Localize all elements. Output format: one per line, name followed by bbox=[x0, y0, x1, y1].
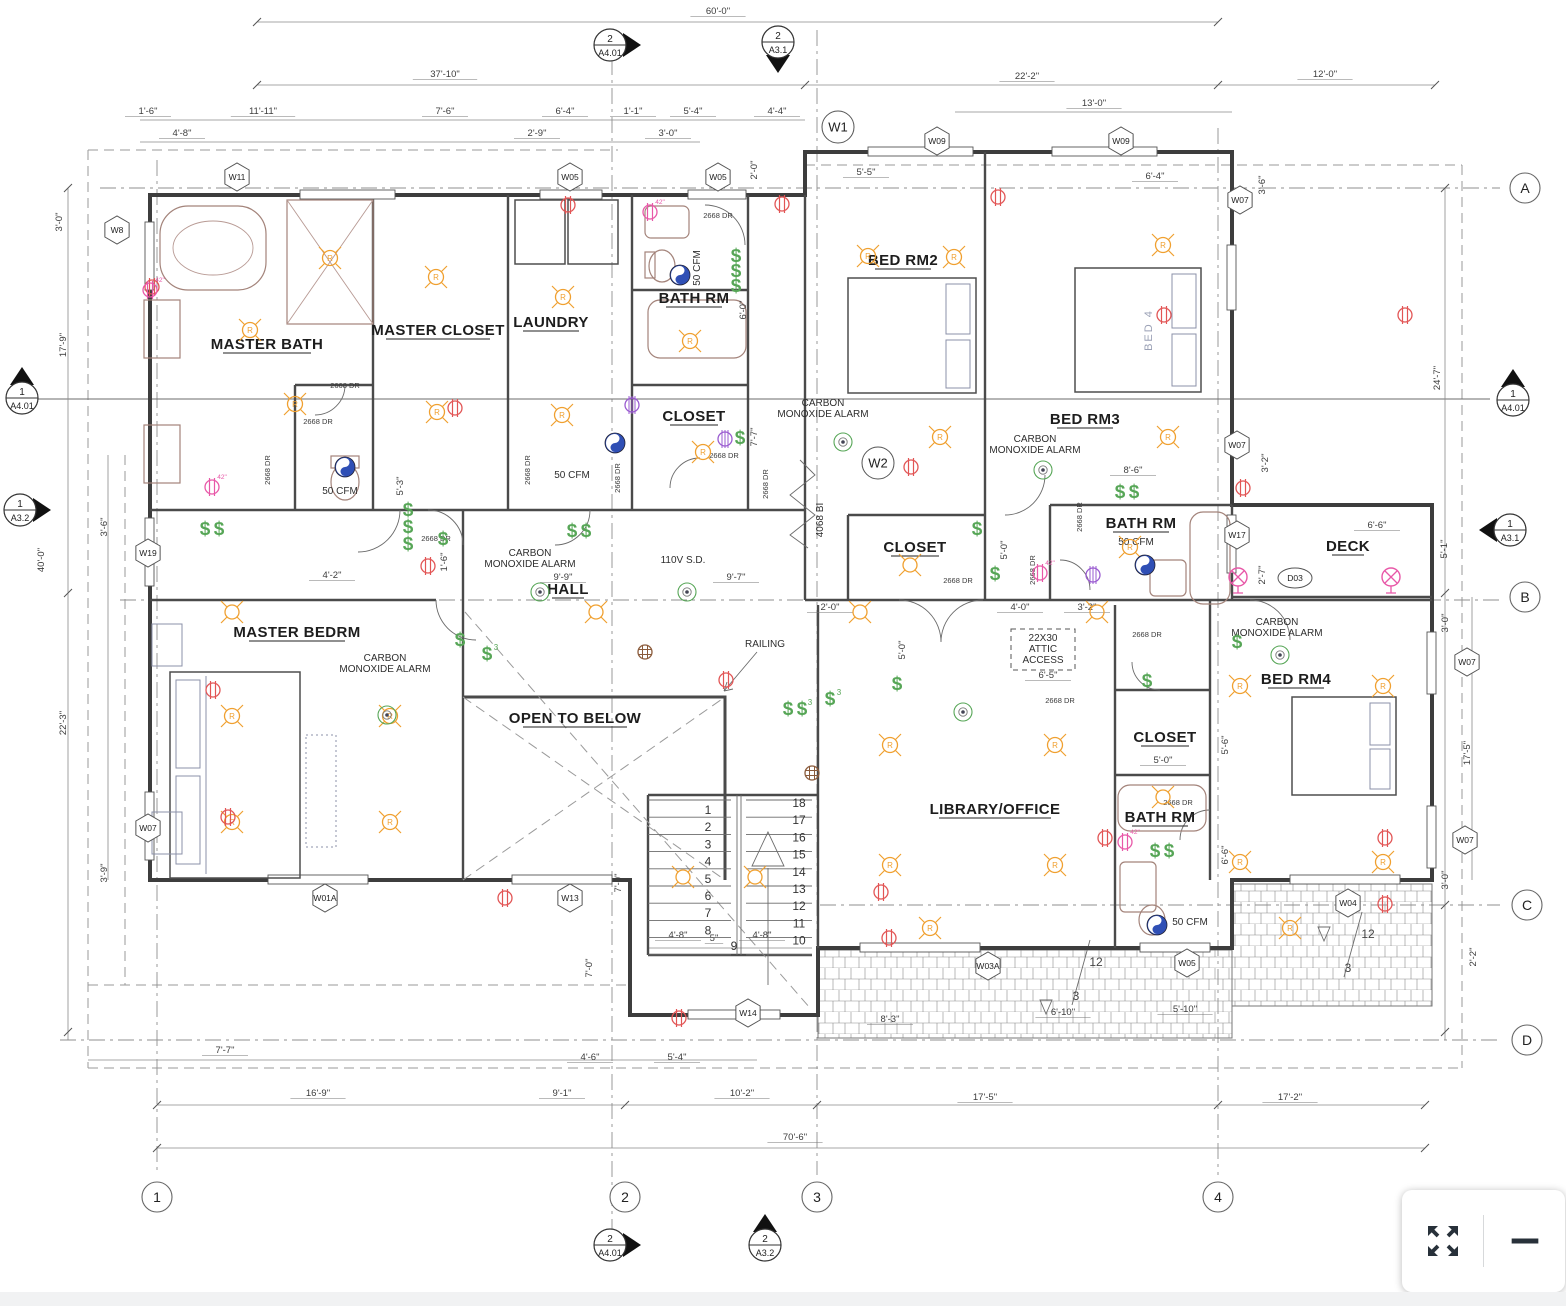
door-size-label: 2668 DR bbox=[1132, 630, 1162, 639]
duplex-outlet-icon bbox=[448, 401, 462, 415]
detector-center-dot bbox=[385, 713, 389, 717]
room-label: LAUNDRY bbox=[513, 314, 589, 331]
switch-icon: $ bbox=[403, 534, 414, 555]
recessed-light-letter: R bbox=[247, 326, 253, 335]
stair-number: 9 bbox=[731, 939, 738, 953]
switch-icon: $ bbox=[1164, 841, 1175, 862]
annotation-label: ACCESS bbox=[1022, 655, 1063, 666]
door-size-label: 2668 DR bbox=[761, 469, 770, 499]
floorplan-canvas[interactable]: MASTER BATHMASTER CLOSETLAUNDRYBATH RMBE… bbox=[0, 0, 1566, 1306]
dimension-label: 1'-1" bbox=[624, 106, 643, 117]
dimension-label: 6'-0" bbox=[738, 301, 749, 320]
window-tag-label: W07 bbox=[1456, 835, 1474, 845]
annotation-label: 50 CFM bbox=[322, 486, 358, 497]
ceiling-light-icon bbox=[225, 605, 239, 619]
grid-bubble-label: D bbox=[1522, 1032, 1532, 1048]
duplex-outlet-icon bbox=[874, 885, 888, 899]
stair-number: 14 bbox=[792, 865, 806, 879]
grid-bubble-label: C bbox=[1522, 897, 1532, 913]
section-marker-sheet: A3.1 bbox=[769, 45, 788, 55]
stair-number: 13 bbox=[792, 882, 806, 896]
dimension-label: 17'-5" bbox=[1462, 741, 1473, 765]
outlet-42in-label: 42" bbox=[1130, 829, 1140, 836]
section-marker-sheet: A4.01 bbox=[10, 401, 34, 411]
annotation-label: CARBON bbox=[509, 548, 552, 559]
dimension-label: 5'-0" bbox=[1154, 755, 1173, 766]
recessed-light-letter: R bbox=[327, 254, 333, 263]
door-size-label: 2668 DR bbox=[703, 211, 733, 220]
window-tag-label: W07 bbox=[1458, 657, 1476, 667]
switch-3way-label: 3 bbox=[808, 698, 813, 707]
recessed-light-letter: R bbox=[1052, 861, 1058, 870]
room-label: BED RM4 bbox=[1261, 671, 1332, 688]
stair-number: 4 bbox=[705, 855, 712, 869]
grid-bubble-label: 4 bbox=[1214, 1189, 1222, 1205]
recessed-light-letter: R bbox=[687, 337, 693, 346]
dimension-label: 5'-4" bbox=[668, 1052, 687, 1063]
annotation-label: 3 bbox=[1073, 989, 1080, 1003]
annotation-label: ATTIC bbox=[1029, 644, 1057, 655]
stair-number: 12 bbox=[792, 899, 806, 913]
dimension-label: 22'-2" bbox=[1015, 71, 1039, 82]
annotation-label: 12 bbox=[1089, 955, 1103, 969]
recessed-light-letter: R bbox=[1052, 741, 1058, 750]
ceiling-light-arms bbox=[221, 601, 243, 623]
dimension-label: 2'-0" bbox=[821, 602, 840, 613]
annotation-label: MONOXIDE ALARM bbox=[989, 445, 1080, 456]
recessed-light-letter: R bbox=[937, 433, 943, 442]
room-label: MASTER CLOSET bbox=[371, 322, 505, 339]
window-tag-label: W03A bbox=[976, 961, 999, 971]
grid-bubble-label: A bbox=[1520, 180, 1530, 196]
room-label: HALL bbox=[547, 581, 589, 598]
grid-bubble-label: 2 bbox=[621, 1189, 629, 1205]
window-tag-label: W07 bbox=[1231, 195, 1249, 205]
section-marker-number: 1 bbox=[19, 387, 25, 398]
stair-number: 7 bbox=[705, 906, 712, 920]
recessed-light-letter: R bbox=[229, 712, 235, 721]
section-marker-number: 2 bbox=[775, 31, 781, 42]
recessed-light-letter: R bbox=[433, 273, 439, 282]
dimension-label: 17'-9" bbox=[58, 333, 69, 357]
dimension-label: 7'-7" bbox=[216, 1045, 235, 1056]
recessed-light-letter: R bbox=[1287, 924, 1293, 933]
annotation-label: BED 4 bbox=[1143, 309, 1155, 351]
dimension-label: 5'-3" bbox=[395, 477, 406, 496]
duplex-outlet-icon bbox=[421, 559, 435, 573]
detector-center-dot bbox=[685, 590, 689, 594]
ceiling-light-arms bbox=[585, 601, 607, 623]
ceiling-light-icon bbox=[589, 605, 603, 619]
section-marker-number: 1 bbox=[17, 499, 23, 510]
recessed-light-letter: R bbox=[1127, 543, 1133, 552]
dimension-label: 7'-6" bbox=[436, 106, 455, 117]
window-tag-label: W05 bbox=[1178, 958, 1196, 968]
dimension-label: 13'-0" bbox=[1082, 98, 1106, 109]
switch-icon: $ bbox=[567, 521, 578, 542]
recessed-light-letter: R bbox=[1165, 433, 1171, 442]
duplex-outlet-icon bbox=[206, 683, 220, 697]
dimension-label: 2'-2" bbox=[1468, 948, 1479, 967]
door-size-label: 2668 DR bbox=[1045, 696, 1075, 705]
window-tag-label: W07 bbox=[139, 823, 157, 833]
dimension-label: 3'-0" bbox=[1440, 871, 1451, 890]
dimension-label: 4'-8" bbox=[173, 128, 192, 139]
outlet-42in-label: 42" bbox=[155, 277, 165, 284]
weatherproof-light-marks bbox=[1385, 571, 1397, 593]
recessed-light-letter: R bbox=[1237, 858, 1243, 867]
duplex-outlet-icon bbox=[221, 810, 235, 824]
dimension-label: 5'-0" bbox=[999, 541, 1010, 560]
room-label: BATH RM bbox=[1106, 515, 1177, 532]
dimension-label: 3'-9" bbox=[99, 864, 110, 883]
door-size-label: 2668 DR bbox=[943, 576, 973, 585]
recessed-light-letter: R bbox=[951, 253, 957, 262]
room-label: MASTER BEDRM bbox=[233, 624, 360, 641]
stair-number: 16 bbox=[792, 830, 806, 844]
duplex-outlet-icon bbox=[775, 197, 789, 211]
annotation-label: 50 CFM bbox=[554, 470, 590, 481]
recessed-light-letter: R bbox=[387, 712, 393, 721]
dimension-label: 4'-4" bbox=[768, 106, 787, 117]
room-label: CLOSET bbox=[1133, 729, 1196, 746]
dimension-label: 7'-0" bbox=[613, 874, 624, 893]
window-tag-label: W17 bbox=[1228, 530, 1246, 540]
detector-center-dot bbox=[1041, 468, 1045, 472]
dimension-label: 37'-10" bbox=[430, 69, 459, 80]
section-marker-sheet: A3.2 bbox=[11, 513, 30, 523]
detector-center-dot bbox=[841, 440, 845, 444]
annotation-label: MONOXIDE ALARM bbox=[339, 664, 430, 675]
ceiling-light-arms bbox=[849, 601, 871, 623]
door-size-label: 2668 DR bbox=[263, 455, 272, 485]
dimension-label: 10'-2" bbox=[730, 1088, 754, 1099]
switch-icon: $ bbox=[990, 564, 1001, 585]
dimension-label: 24'-7" bbox=[1432, 366, 1443, 390]
duplex-outlet-icon bbox=[904, 460, 918, 474]
room-label: LIBRARY/OFFICE bbox=[930, 801, 1061, 818]
dimension-label: 5'-6" bbox=[1220, 736, 1231, 755]
outlet-42in-label: 42" bbox=[655, 199, 665, 206]
section-marker-sheet: A4.01 bbox=[598, 1248, 622, 1258]
section-marker-number: 2 bbox=[762, 1234, 768, 1245]
dimension-label: 8'-3" bbox=[881, 1014, 900, 1025]
switch-icon: $ bbox=[783, 699, 794, 720]
room-label: CLOSET bbox=[883, 539, 946, 556]
dimension-label: 1'-6" bbox=[139, 106, 158, 117]
window-tag-label: W09 bbox=[928, 136, 946, 146]
outlet-42in-icon bbox=[205, 480, 219, 494]
switch-icon: $ bbox=[1129, 482, 1140, 503]
door-size-label: 2668 DR bbox=[613, 463, 622, 493]
minus-icon bbox=[1505, 1221, 1545, 1261]
window-tag-label: W05 bbox=[561, 172, 579, 182]
grid-bubble-label: 1 bbox=[153, 1189, 161, 1205]
dimension-label: 3'-2" bbox=[1078, 602, 1097, 613]
dimension-label: 6'-5" bbox=[1039, 670, 1058, 681]
dimension-label: 2'-0" bbox=[749, 161, 760, 180]
dimension-label: 8'-6" bbox=[1124, 465, 1143, 476]
stair-number: 11 bbox=[793, 916, 806, 930]
section-marker-sheet: A4.01 bbox=[598, 48, 622, 58]
dimension-label: 5'-10" bbox=[1173, 1004, 1197, 1015]
dimension-label: 17'-2" bbox=[1278, 1092, 1302, 1103]
dimension-label: 2'-7" bbox=[1257, 566, 1268, 585]
window-tag-label: W8 bbox=[111, 225, 124, 235]
recessed-light-letter: R bbox=[865, 252, 871, 261]
switch-3way-label: 3 bbox=[837, 688, 842, 697]
dimension-label: 70'-6" bbox=[783, 1132, 807, 1143]
dimension-label: 16'-9" bbox=[306, 1088, 330, 1099]
dimension-label: 6'-4" bbox=[556, 106, 575, 117]
room-label: MASTER BATH bbox=[211, 336, 323, 353]
recessed-light-letter: R bbox=[1237, 682, 1243, 691]
section-marker-number: 1 bbox=[1510, 389, 1516, 400]
stair-number: 15 bbox=[792, 848, 806, 862]
dimension-label: 6'-10" bbox=[1051, 1007, 1075, 1018]
dimension-label: 6'-4" bbox=[1146, 171, 1165, 182]
dimension-label: 4'-8" bbox=[669, 930, 688, 941]
switch-icon: $ bbox=[438, 529, 449, 550]
fullscreen-button[interactable] bbox=[1415, 1213, 1471, 1269]
stair-number: 1 bbox=[705, 803, 712, 817]
room-label: CLOSET bbox=[662, 408, 725, 425]
switch-icon: $ bbox=[797, 699, 808, 720]
dimension-label: 7'-7" bbox=[749, 428, 760, 447]
weatherproof-light-marks bbox=[1232, 571, 1244, 593]
switch-icon: $ bbox=[731, 276, 742, 297]
window-tag-label: W09 bbox=[1112, 136, 1130, 146]
switch-3way-label: 3 bbox=[494, 643, 499, 652]
annotation-label: CARBON bbox=[1014, 434, 1057, 445]
stair-number: 10 bbox=[792, 934, 806, 948]
dimension-label: 9'-7" bbox=[727, 572, 746, 583]
dimension-label: 4'-0" bbox=[1011, 602, 1030, 613]
dimension-label: 5'-5" bbox=[857, 167, 876, 178]
annotation-label: 3 bbox=[1345, 961, 1352, 975]
switch-icon: $ bbox=[1232, 632, 1243, 653]
room-label: BATH RM bbox=[1125, 809, 1196, 826]
recessed-light-letter: R bbox=[1160, 241, 1166, 250]
dimension-label: 9'-1" bbox=[553, 1088, 572, 1099]
ceiling-light-icon bbox=[748, 870, 762, 884]
stair-number: 8 bbox=[705, 923, 712, 937]
duplex-outlet-icon bbox=[1378, 831, 1392, 845]
recessed-light-letter: R bbox=[387, 818, 393, 827]
dimension-label: 11'-11" bbox=[249, 106, 277, 117]
recessed-light-letter: R bbox=[560, 293, 566, 302]
annotation-label: MONOXIDE ALARM bbox=[777, 409, 868, 420]
annotation-label: CARBON bbox=[802, 398, 845, 409]
recessed-light-letter: R bbox=[887, 861, 893, 870]
dimension-label: 60'-0" bbox=[706, 6, 730, 17]
bottom-strip bbox=[0, 1292, 1566, 1306]
dimension-label: 5'-1" bbox=[1439, 540, 1450, 559]
dimension-label: 6'-6" bbox=[1368, 520, 1387, 531]
section-marker-sheet: A3.1 bbox=[1501, 533, 1520, 543]
window-tag-label: W1 bbox=[828, 120, 848, 135]
switch-icon: $ bbox=[581, 521, 592, 542]
room-label: OPEN TO BELOW bbox=[509, 710, 642, 727]
window-tag-label: W2 bbox=[868, 456, 888, 471]
window-tag-label: W19 bbox=[139, 548, 157, 558]
fullscreen-icon bbox=[1423, 1221, 1463, 1261]
room-label: DECK bbox=[1326, 538, 1370, 555]
staircase bbox=[737, 795, 784, 985]
outlet-42in-label: 42" bbox=[1045, 560, 1055, 567]
switch-icon: $ bbox=[825, 689, 836, 710]
recessed-light-letter: R bbox=[700, 448, 706, 457]
open-to-below-cross bbox=[463, 612, 810, 1008]
annotation-label: CARBON bbox=[1256, 617, 1299, 628]
window-tag-label: W05 bbox=[709, 172, 727, 182]
window-tag-label: W14 bbox=[739, 1008, 757, 1018]
stair-number: 6 bbox=[705, 889, 712, 903]
dimension-label: 7'-0" bbox=[584, 959, 595, 978]
duplex-outlet-icon bbox=[1236, 481, 1250, 495]
annotation-label: 110V S.D. bbox=[661, 555, 706, 566]
ceiling-light-icon bbox=[903, 558, 917, 572]
annotation-label: RAILING bbox=[745, 639, 785, 650]
door-size-label: 2668 DR bbox=[1075, 502, 1084, 532]
section-marker-number: 1 bbox=[1507, 519, 1513, 530]
ceiling-light-arms bbox=[672, 866, 694, 888]
switch-icon: $ bbox=[482, 644, 493, 665]
switch-icon: $ bbox=[1150, 841, 1161, 862]
annotation-label: CARBON bbox=[364, 653, 407, 664]
grid-bubble-label: B bbox=[1520, 589, 1529, 605]
junction-box-icon bbox=[638, 645, 652, 659]
section-marker-sheet: A3.2 bbox=[756, 1248, 775, 1258]
dimension-label: 3'-6" bbox=[1257, 176, 1268, 195]
annotation-label: 50 CFM bbox=[692, 250, 703, 286]
door-size-label: 2668 DR bbox=[303, 417, 333, 426]
dimension-label: 2'-9" bbox=[528, 128, 547, 139]
annotation-label: 22X30 bbox=[1029, 633, 1058, 644]
annotation-label: 4068 BI bbox=[815, 503, 826, 537]
toolbar-divider bbox=[1483, 1215, 1484, 1267]
annotation-label: MONOXIDE ALARM bbox=[484, 559, 575, 570]
detector-center-dot bbox=[1278, 653, 1282, 657]
dimension-label: 22'-3" bbox=[58, 711, 69, 735]
stair-number: 17 bbox=[792, 813, 806, 827]
outlet-42in-label: 42" bbox=[217, 474, 227, 481]
switch-icon: $ bbox=[200, 519, 211, 540]
room-label: BATH RM bbox=[659, 290, 730, 307]
annotation-label: 12 bbox=[1361, 927, 1375, 941]
annotation-label: 50 CFM bbox=[1172, 917, 1208, 928]
grid-bubble-label: 3 bbox=[813, 1189, 821, 1205]
recessed-light-letter: R bbox=[292, 400, 298, 409]
duplex-outlet-icon bbox=[1398, 308, 1412, 322]
duplex-outlet-icon bbox=[1157, 308, 1171, 322]
dimension-label: 9'-9" bbox=[554, 572, 573, 583]
dimension-label: 5'-4" bbox=[684, 106, 703, 117]
switch-icon: $ bbox=[1115, 482, 1126, 503]
dimension-label: 3'-6" bbox=[99, 518, 110, 537]
dimension-label: 4'-6" bbox=[581, 1052, 600, 1063]
stair-number: 3 bbox=[705, 837, 712, 851]
switch-icon: $ bbox=[972, 519, 983, 540]
window-tag-label: W04 bbox=[1339, 898, 1357, 908]
door-size-label: 2668 DR bbox=[523, 455, 532, 485]
recessed-light-letter: R bbox=[887, 741, 893, 750]
switch-icon: $ bbox=[455, 630, 466, 651]
dimension-label: 17'-5" bbox=[973, 1092, 997, 1103]
dimension-label: 4'-2" bbox=[323, 570, 342, 581]
section-marker-number: 2 bbox=[607, 1234, 613, 1245]
duplex-outlet-icon bbox=[498, 891, 512, 905]
annotation-label: MONOXIDE ALARM bbox=[1231, 628, 1322, 639]
window-tag-label: W01A bbox=[313, 893, 336, 903]
plumbing-fixtures bbox=[144, 200, 1230, 935]
ceiling-light-icon bbox=[676, 870, 690, 884]
room-label: BED RM3 bbox=[1050, 411, 1120, 428]
switch-icon: $ bbox=[735, 428, 746, 449]
door-size-label: 2668 DR bbox=[1028, 555, 1037, 585]
dimension-label: 6'-6" bbox=[1220, 846, 1231, 865]
detector-center-dot bbox=[538, 590, 542, 594]
switch-icon: $ bbox=[214, 519, 225, 540]
stair-number: 5 bbox=[705, 872, 712, 886]
duplex-outlet-icon bbox=[1098, 831, 1112, 845]
recessed-light-letter: R bbox=[927, 924, 933, 933]
dimension-label: 40'-0" bbox=[36, 548, 47, 572]
dimension-label: 1'-6" bbox=[439, 553, 450, 572]
stair-number: 2 bbox=[705, 820, 712, 834]
section-marker-number: 2 bbox=[607, 34, 613, 45]
dimension-label: 3'-0" bbox=[659, 128, 678, 139]
dimension-label: 5'-0" bbox=[897, 641, 908, 660]
section-marker-sheet: A4.01 bbox=[1501, 403, 1525, 413]
ceiling-light-icon bbox=[853, 605, 867, 619]
switch-icon: $ bbox=[1142, 671, 1153, 692]
zoom-out-button[interactable] bbox=[1497, 1213, 1553, 1269]
ceiling-light-arms bbox=[899, 554, 921, 576]
dimension-label: 12'-0" bbox=[1313, 69, 1337, 80]
dimension-label: 4'-8" bbox=[753, 930, 772, 941]
window-tag-label: W11 bbox=[229, 172, 246, 182]
door-tag-label: D03 bbox=[1287, 573, 1303, 583]
ceiling-light-arms bbox=[744, 866, 766, 888]
window-tag-label: W07 bbox=[1228, 440, 1246, 450]
door-size-label: 2668 DR bbox=[330, 381, 360, 390]
viewer-toolbar bbox=[1402, 1190, 1565, 1292]
detector-center-dot bbox=[961, 710, 965, 714]
dimension-label: 3'-2" bbox=[1260, 454, 1271, 473]
outlet-42in-icon bbox=[1118, 835, 1132, 849]
recessed-light-letter: R bbox=[559, 411, 565, 420]
recessed-light-letter: R bbox=[1380, 682, 1386, 691]
recessed-light-letter: R bbox=[1380, 858, 1386, 867]
switch-icon: $ bbox=[892, 674, 903, 695]
stair-number: 18 bbox=[792, 796, 806, 810]
window-tag-label: W13 bbox=[561, 893, 579, 903]
dimension-label: 3'-0" bbox=[54, 213, 65, 232]
recessed-light-letter: R bbox=[434, 408, 440, 417]
door-size-label: 2668 DR bbox=[709, 451, 739, 460]
duplex-outlet-icon bbox=[991, 190, 1005, 204]
dimension-label: 3'-0" bbox=[1440, 614, 1451, 633]
